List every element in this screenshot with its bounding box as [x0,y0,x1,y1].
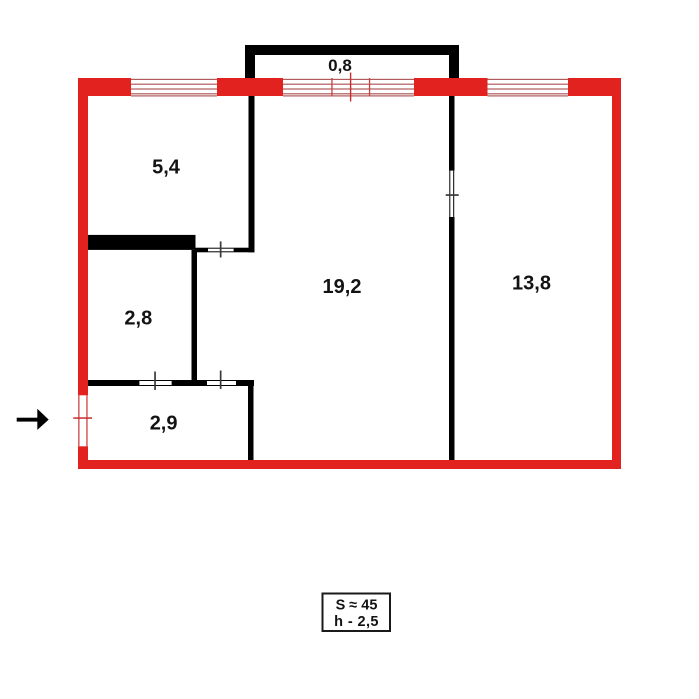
svg-text:2,8: 2,8 [124,307,152,329]
svg-text:0,8: 0,8 [328,56,352,75]
svg-text:5,4: 5,4 [152,157,181,179]
svg-text:2,9: 2,9 [150,413,178,435]
svg-text:h - 2,5: h - 2,5 [334,614,379,630]
svg-text:19,2: 19,2 [323,276,362,298]
svg-text:13,8: 13,8 [512,272,551,294]
svg-text:S ≈ 45: S ≈ 45 [336,598,378,614]
